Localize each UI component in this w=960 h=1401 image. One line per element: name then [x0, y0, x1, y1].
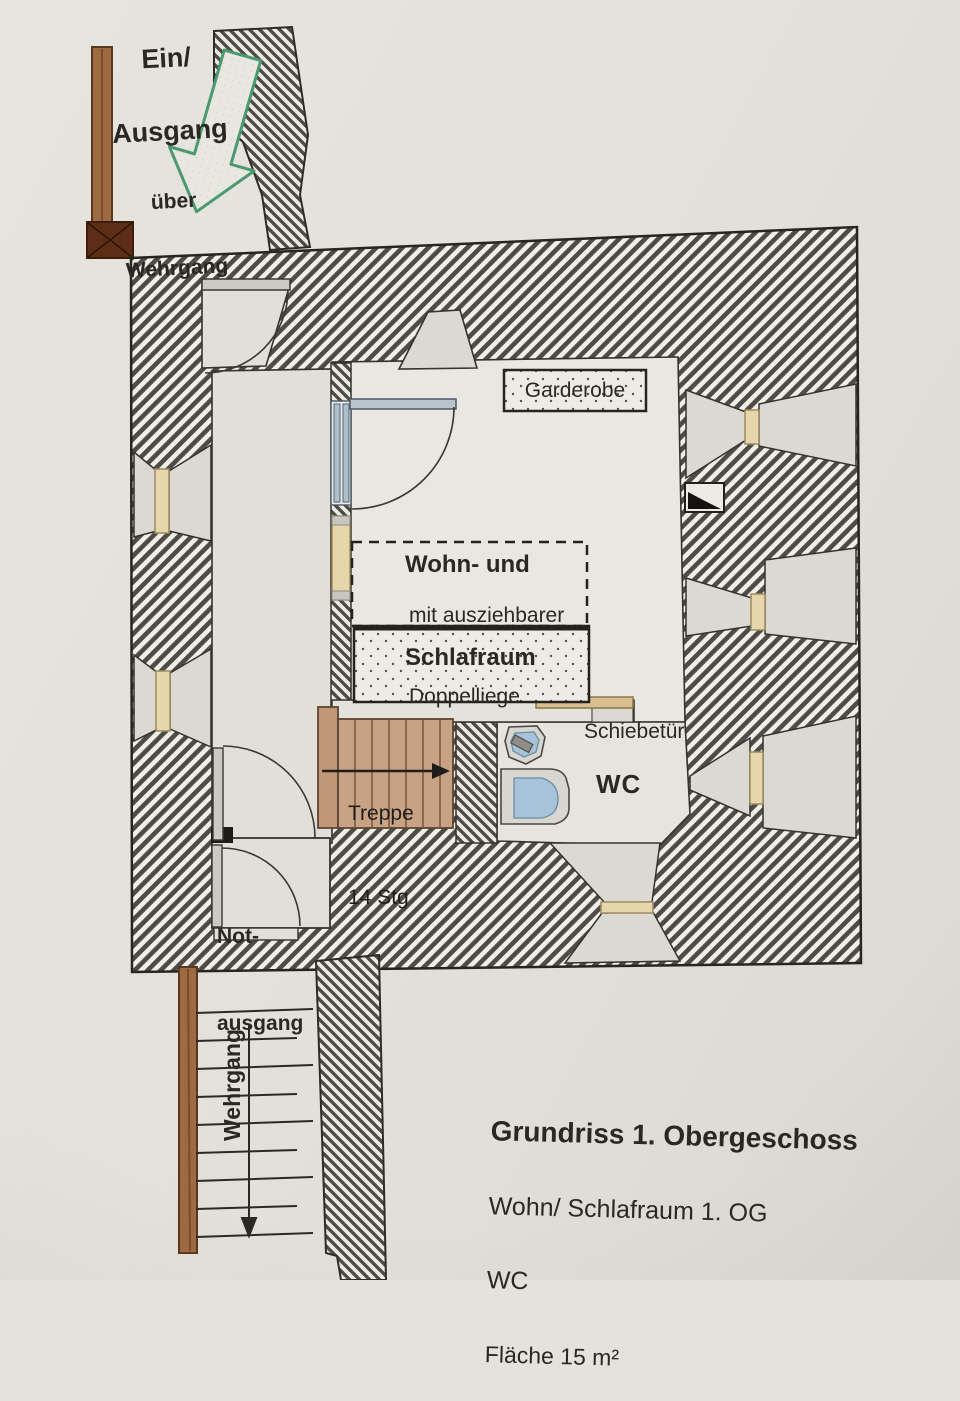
wall-niche-marker	[685, 483, 724, 512]
entrance-note: Ein/ Ausgang über Wehrgang	[95, 0, 247, 305]
wehrgang-label: Wehrgang	[218, 1005, 248, 1165]
entrance-line-2: Ausgang	[101, 111, 239, 151]
caption-line-3: Fläche 15 m²	[484, 1337, 852, 1381]
caption-title: Grundriss 1. Obergeschoss	[490, 1113, 858, 1159]
sliding-door-label: Schiebetür	[584, 719, 684, 745]
wardrobe-label: Garderobe	[504, 371, 646, 411]
wc-partition-wall	[456, 722, 497, 843]
room-left-wall	[331, 363, 351, 707]
entrance-line-3: über	[105, 184, 242, 218]
stairs-label: Treppe 14 Stg	[348, 744, 414, 940]
corridor-floor	[212, 369, 332, 843]
caption-line-1: Wohn/ Schlafraum 1. OG	[488, 1189, 856, 1233]
wc-toilet	[501, 769, 569, 824]
wehrgang-wall-column	[316, 955, 386, 1280]
wehrgang-direction-arrow	[242, 1218, 256, 1236]
caption-line-2: WC	[486, 1263, 854, 1307]
wc-label: WC	[596, 768, 641, 801]
bed-note-label: mit ausziehbarer Doppelliege	[409, 548, 564, 737]
entrance-line-4: Wehrgang	[108, 251, 245, 285]
plan-caption: Grundriss 1. Obergeschoss Wohn/ Schlafra…	[484, 1073, 859, 1401]
entrance-line-1: Ein/	[97, 39, 235, 79]
wehrgang-wood-beam	[179, 967, 197, 1253]
